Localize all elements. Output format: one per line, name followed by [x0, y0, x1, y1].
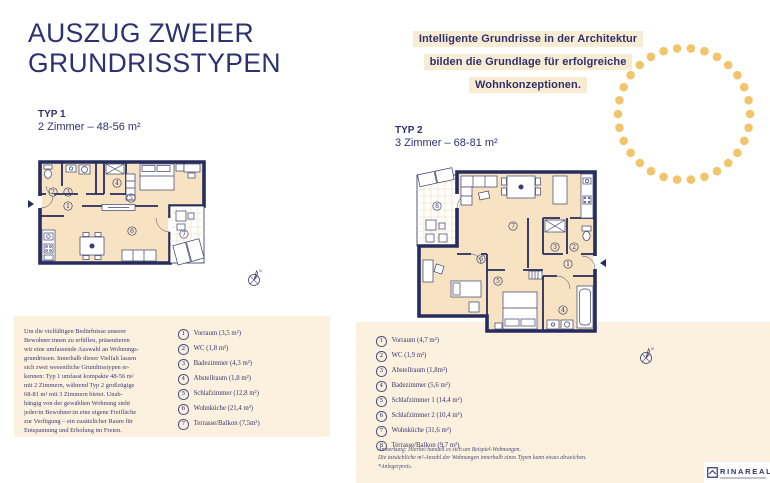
typ2-room-list: 1 Vorraum (4,7 m²) 2 WC (1,9 m²) 3 Abste… [376, 336, 462, 456]
svg-text:1: 1 [66, 203, 70, 210]
dotted-circle-decoration [610, 40, 758, 188]
toilet-typ2 [582, 226, 591, 241]
typ1-room-list: 1 Vorraum (3,5 m²) 2 WC (1,8 m²) 3 Badez… [178, 329, 260, 434]
typ1-subheading: 2 Zimmer – 48-56 m² [38, 121, 141, 133]
svg-text:8: 8 [435, 203, 439, 210]
footnote-anlegerpreis: *Anlegerpreis. [378, 464, 412, 470]
room-number-badge: 7 [178, 419, 189, 430]
room-item: 6 Wohnküche (21,4 m²) [178, 404, 260, 415]
room-item: 3 Badezimmer (4,3 m²) [178, 359, 260, 370]
compass-icon: N [636, 346, 656, 366]
typ1-description: Um die vielfältigen Bedürfnisse unserer … [24, 327, 180, 435]
typ2-floorplan: 1 2 3 4 5 6 7 8 [412, 166, 608, 338]
room-label: Badezimmer (5,6 m²) [392, 382, 450, 391]
room-item: 7 Terrasse/Balkon (7,5m²) [178, 419, 260, 430]
typ1-floorplan: 1 2 3 4 5 6 7 [26, 158, 208, 270]
room-label: Terrasse/Balkon (7,5m²) [194, 420, 260, 429]
svg-text:4: 4 [115, 180, 119, 187]
room-label: Wohnküche (21,4 m²) [194, 405, 253, 414]
room-item: 6 Schlafzimmer 2 (10,4 m²) [376, 411, 462, 422]
room-label: Wohnküche (31,6 m²) [392, 427, 451, 436]
svg-text:N: N [259, 269, 262, 273]
room-item: 5 Schlafzimmer 1 (14,4 m²) [376, 396, 462, 407]
svg-text:3: 3 [66, 189, 70, 196]
room-number-badge: 3 [376, 366, 387, 377]
room-label: Abstellraum (1,8 m²) [194, 375, 251, 384]
typ2-subheading: 3 Zimmer – 68-81 m² [395, 137, 498, 149]
room-label: Schlafzimmer 2 (10,4 m²) [392, 412, 462, 421]
room-item: 7 Wohnküche (31,6 m²) [376, 426, 462, 437]
room-label: WC (1,9 m²) [392, 352, 427, 361]
room-item: 3 Abstellraum (1,8m²) [376, 366, 462, 377]
room-number-badge: 2 [376, 351, 387, 362]
svg-text:7: 7 [182, 231, 186, 238]
room-item: 4 Abstellraum (1,8 m²) [178, 374, 260, 385]
room-number-badge: 4 [376, 381, 387, 392]
intro-line: Intelligente Grundrisse in der Architekt… [413, 31, 643, 47]
svg-text:2: 2 [51, 189, 55, 196]
room-number-badge: 2 [178, 344, 189, 355]
kitchen-typ1 [42, 230, 55, 261]
page-title: AUSZUG ZWEIER GRUNDRISSTYPEN [28, 18, 281, 78]
typ1-terrace [170, 206, 204, 265]
room-label: Schlafzimmer (12,8 m²) [194, 390, 259, 399]
svg-text:6: 6 [130, 228, 134, 235]
room-number-badge: 1 [376, 336, 387, 347]
room-item: 2 WC (1,8 m²) [178, 344, 260, 355]
room-item: 2 WC (1,9 m²) [376, 351, 462, 362]
typ1-entry-arrow [28, 200, 34, 208]
svg-text:4: 4 [561, 307, 565, 314]
room-number-badge: 4 [178, 374, 189, 385]
room-item: 1 Vorraum (3,5 m²) [178, 329, 260, 340]
logo-tagline [720, 477, 766, 479]
logo-roof-icon [707, 467, 718, 478]
dining-typ2 [502, 176, 541, 198]
svg-text:N: N [651, 347, 654, 351]
room-item: 4 Badezimmer (5,6 m²) [376, 381, 462, 392]
room-number-badge: 7 [376, 426, 387, 437]
logo-name: RINAREAL [720, 467, 770, 476]
sofa-typ1 [122, 250, 156, 261]
svg-text:6: 6 [479, 256, 483, 263]
svg-text:5: 5 [496, 278, 500, 285]
svg-text:1: 1 [566, 261, 570, 268]
room-label: Badezimmer (4,3 m²) [194, 360, 252, 369]
intro-line: Wohnkonzeptionen. [469, 77, 587, 93]
room-number-badge: 5 [178, 389, 189, 400]
svg-text:2: 2 [572, 244, 576, 251]
typ2-entry-arrow [600, 259, 606, 267]
bed-typ2-double [503, 292, 537, 329]
room-label: WC (1,8 m²) [194, 345, 229, 354]
svg-text:5: 5 [129, 195, 133, 202]
room-number-badge: 1 [178, 329, 189, 340]
bed-typ1 [140, 164, 174, 190]
svg-text:7: 7 [511, 223, 515, 230]
room-number-badge: 6 [376, 411, 387, 422]
room-number-badge: 3 [178, 359, 189, 370]
brochure-page: AUSZUG ZWEIER GRUNDRISSTYPEN Intelligent… [0, 0, 770, 483]
intro-line: bilden die Grundlage für erfolgreiche [424, 54, 633, 70]
room-item: 5 Schlafzimmer (12,8 m²) [178, 389, 260, 400]
room-label: Schlafzimmer 1 (14,4 m²) [392, 397, 462, 406]
room-number-badge: 6 [178, 404, 189, 415]
room-label: Abstellraum (1,8m²) [392, 367, 448, 376]
logo: RINAREAL [704, 462, 770, 483]
bed-typ2-single [451, 281, 481, 297]
room-label: Vorraum (4,7 m²) [392, 337, 439, 346]
typ2-heading: TYP 2 [395, 125, 423, 136]
room-label: Vorraum (3,5 m²) [194, 330, 241, 339]
room-number-badge: 5 [376, 396, 387, 407]
compass-icon: N [244, 268, 264, 288]
footnote: Anmerkung: Hierbei handelt es sich um Be… [378, 446, 587, 462]
svg-text:3: 3 [553, 244, 557, 251]
typ1-heading: TYP 1 [38, 109, 66, 120]
